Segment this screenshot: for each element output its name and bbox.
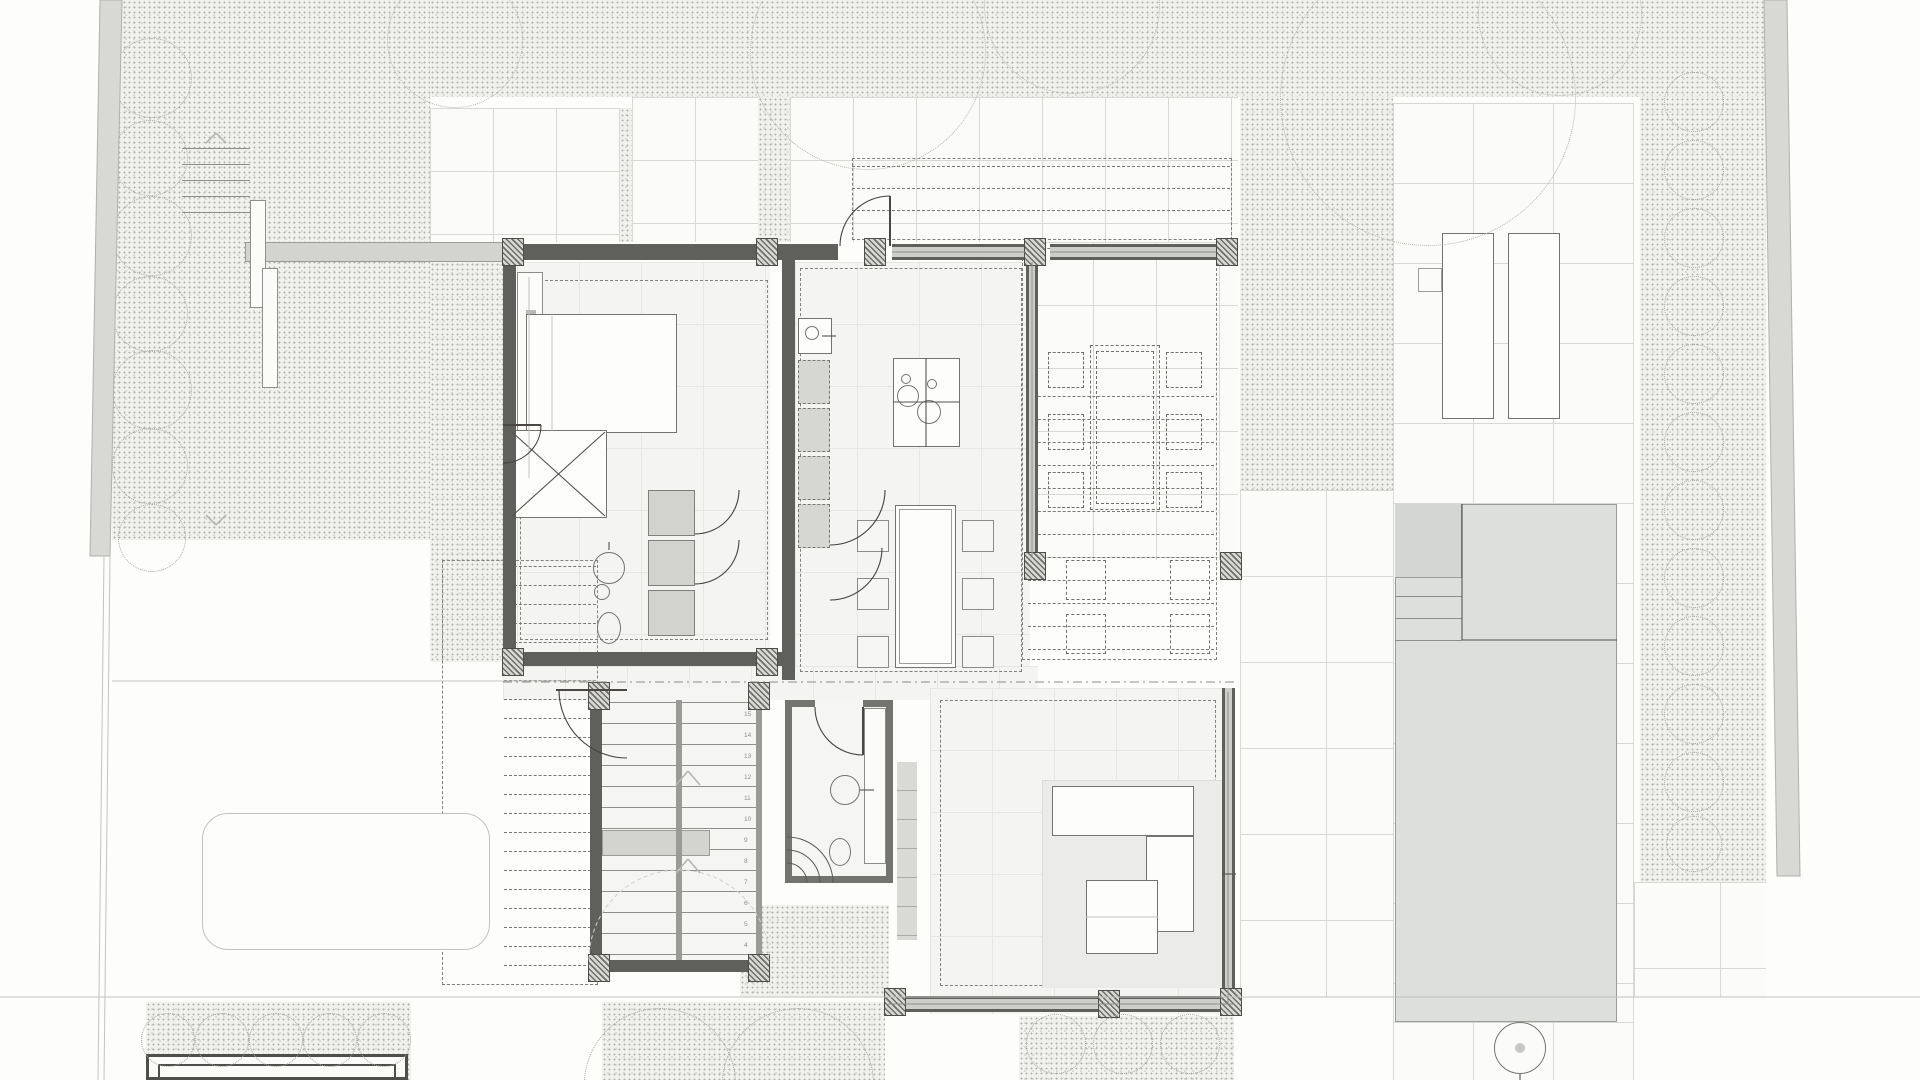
plan-line [98,556,104,1080]
stair-treads-left [602,807,676,808]
bed [526,314,677,433]
carport-louvers [504,680,596,681]
kitchen-cabinet [798,504,830,548]
stair-treads-left [602,702,676,703]
pergola-north [852,158,1232,240]
stair-treads-left [602,954,676,955]
patio-northwest [430,108,620,242]
wall-pilaster [502,648,524,676]
tree-icon [1664,412,1724,472]
stair-step-number: 15 [744,712,751,719]
carport-louvers [504,889,596,890]
tree-icon [1664,480,1724,540]
walkway-steps [182,164,250,165]
cooktop-burner [927,379,937,389]
stair-treads-left [602,933,676,934]
outdoor-dining-table-inner [1096,351,1154,504]
stair-step-number: 12 [744,775,751,782]
tree-icon [1664,72,1724,132]
carport-louvers [504,965,596,966]
stair-landing [602,830,710,856]
carport-louvers [504,566,596,567]
kitchen-cabinet [798,360,830,404]
walkway-steps [182,180,250,181]
west-wall [503,244,516,666]
wall-pilaster [588,682,610,710]
stair-treads-left [602,870,676,871]
carport-louvers [504,813,596,814]
powder-wall [785,700,792,883]
stair-treads-left [602,786,676,787]
stair-treads-right [682,786,756,787]
carport-louvers [504,775,596,776]
wall-pilaster [502,238,524,266]
stair-treads-left [602,828,676,829]
stair-treads-left [602,744,676,745]
bush-icon [195,1013,249,1067]
carport-louvers [504,718,596,719]
stair-treads-right [682,723,756,724]
pergola-lounge-chair [1170,560,1210,600]
tree-icon [112,38,192,118]
north-window-kitchen [892,244,1026,260]
outdoor-chair [1166,414,1202,450]
walkway-steps [182,196,250,197]
pergola-lounge-chair [1066,560,1106,600]
car [202,813,490,950]
tree-icon [1666,816,1722,872]
bath-cabinet [648,490,695,536]
powder-toilet [829,838,851,866]
carport-louvers [504,585,596,586]
wall-pilaster [756,238,778,266]
pool-step-treads [1395,618,1462,619]
stair-treads-right [682,954,756,955]
stair-treads-right [682,912,756,913]
plan-line [104,556,110,1080]
bath-sink-small [594,584,610,600]
wall-pilaster [748,682,770,710]
dining-chair [857,578,889,610]
wall-pilaster [864,238,886,266]
walkway-steps [182,148,250,149]
pool-steps [1395,504,1462,578]
stair-treads-left [602,891,676,892]
pergola-north-louvers [852,188,1230,189]
wall-pilaster [1216,238,1238,266]
tree-icon [112,428,188,504]
powder-wall [785,876,893,883]
dining-chair [857,636,889,668]
kitchen-east-window [1026,262,1038,560]
deck-corner [1634,882,1766,997]
stair-west-wall [590,688,602,972]
carport-louvers [504,927,596,928]
stair-step-number: 10 [744,817,751,824]
coffee-table [1086,880,1158,954]
dining-chair [857,520,889,552]
kitchen-cabinet [798,456,830,500]
pool [1395,504,1617,1022]
stair-treads-right [682,702,756,703]
pergola-louvers [1028,557,1214,558]
bath-cabinet [648,590,695,636]
pergola-louvers [1028,534,1214,535]
stair-treads-right [682,744,756,745]
cooktop-pot [917,400,941,424]
tree-icon [1664,616,1724,676]
dining-chair [962,520,994,552]
stair-step-number: 5 [744,922,748,929]
carport-louvers [504,623,596,624]
tree-icon [1664,344,1724,404]
pergola-north-louvers [852,210,1230,211]
bush-icon [249,1013,303,1067]
walkway-wall [262,268,278,388]
stair-step-number: 13 [744,754,751,761]
outdoor-shower-head [1515,1043,1525,1053]
bush-icon [141,1013,195,1067]
tree-icon [1664,208,1724,268]
cooktop-burner [901,374,911,384]
wall-pilaster [748,954,770,982]
walkway-steps [182,212,250,213]
pergola-lounge-chair [1066,614,1106,654]
pool-step-treads [1395,596,1462,597]
wall-pilaster [588,954,610,982]
stair-step-number: 14 [744,733,751,740]
stair-south-wall [590,960,762,972]
north-window-terrace [1050,244,1216,260]
bath-cabinet [648,540,695,586]
garden-gap-1 [620,108,632,242]
stair-step-number: 11 [744,796,751,803]
carport-louvers [504,699,596,700]
stair-treads-left [602,912,676,913]
carport-louvers [504,946,596,947]
wall-pilaster [1220,988,1242,1016]
patio-north-1 [632,97,758,242]
toilet [597,612,621,644]
dining-chair [962,636,994,668]
stair-treads-left [602,723,676,724]
tree-icon [112,276,188,352]
garden-entry-court [740,905,889,997]
carport-louvers [504,870,596,871]
tree-icon [1664,140,1724,200]
stair-step-number: 4 [744,943,748,950]
pergola-north-louvers [852,166,1230,167]
bush-icon [357,1013,411,1067]
wall-cabinet [897,762,917,940]
boundary-wall-right [1764,0,1800,876]
powder-vanity [864,708,886,864]
wall-pilaster [884,988,906,1016]
pergola-louvers [1028,511,1214,512]
north-wall-bedroom [503,244,782,260]
outdoor-chair [1048,472,1084,508]
carport-louvers [504,908,596,909]
tree-icon [1664,548,1724,608]
stair-treads-right [682,891,756,892]
deck-side-table [1418,268,1442,292]
carport-louvers [504,832,596,833]
tree-icon [1664,276,1724,336]
bush-icon [1160,1014,1220,1074]
stair-treads-right [682,870,756,871]
floor-plan: 151413121110987654 [0,0,1920,1080]
sun-lounger [1442,233,1494,419]
pool-step-treads [1395,640,1462,641]
pergola-lounge-chair [1170,614,1210,654]
carport-louvers [504,737,596,738]
stair-step-number: 9 [744,838,748,845]
carport-louvers [504,851,596,852]
stair-treads-right [682,807,756,808]
bush-icon [303,1013,357,1067]
stair-treads-right [682,828,756,829]
dining-chair [962,578,994,610]
powder-sink [830,775,860,805]
bush-icon [1026,1014,1086,1074]
outdoor-chair [1166,472,1202,508]
entry-walk-bridge [245,242,503,262]
stair-center-rail [676,700,682,960]
living-east-window [1222,688,1235,1008]
kitchen-sink-bowl [805,326,819,340]
wall-pilaster [1220,552,1242,580]
outdoor-chair [1048,352,1084,388]
stair-treads-left [602,765,676,766]
stair-step-number: 6 [744,901,748,908]
sun-lounger [1508,233,1560,419]
shower [510,430,607,518]
stair-treads-right [682,933,756,934]
outdoor-chair [1048,414,1084,450]
pergola-louvers [1028,603,1214,604]
kitchen-west-wall [782,244,795,680]
tree-icon [118,504,186,572]
tree-icon [1664,752,1724,812]
carport-louvers [504,756,596,757]
deck-east [1240,490,1393,997]
stair-step-number: 8 [744,859,748,866]
living-south-window [888,996,1235,1012]
carport-louvers [504,794,596,795]
carport-louvers [504,642,596,643]
tree-icon [112,350,192,430]
carport-louvers [504,604,596,605]
powder-wall [886,700,893,883]
sofa [1052,786,1194,836]
cooktop-pot [897,385,919,407]
stair-step-number: 7 [744,880,748,887]
stair-east-rail [756,688,762,960]
tree-icon [112,196,192,276]
kitchen-cabinet [798,408,830,452]
south-wall-bedroom [503,652,782,666]
wall-pilaster [1024,238,1046,266]
outdoor-chair [1166,352,1202,388]
dining-table-inner [899,509,952,664]
tree-icon [112,120,188,196]
wall-pilaster [1024,552,1046,580]
stair-treads-right [682,765,756,766]
wall-pilaster [756,648,778,676]
bath-sink [593,552,625,584]
bush-icon [1093,1014,1153,1074]
tree-icon [1664,684,1724,744]
